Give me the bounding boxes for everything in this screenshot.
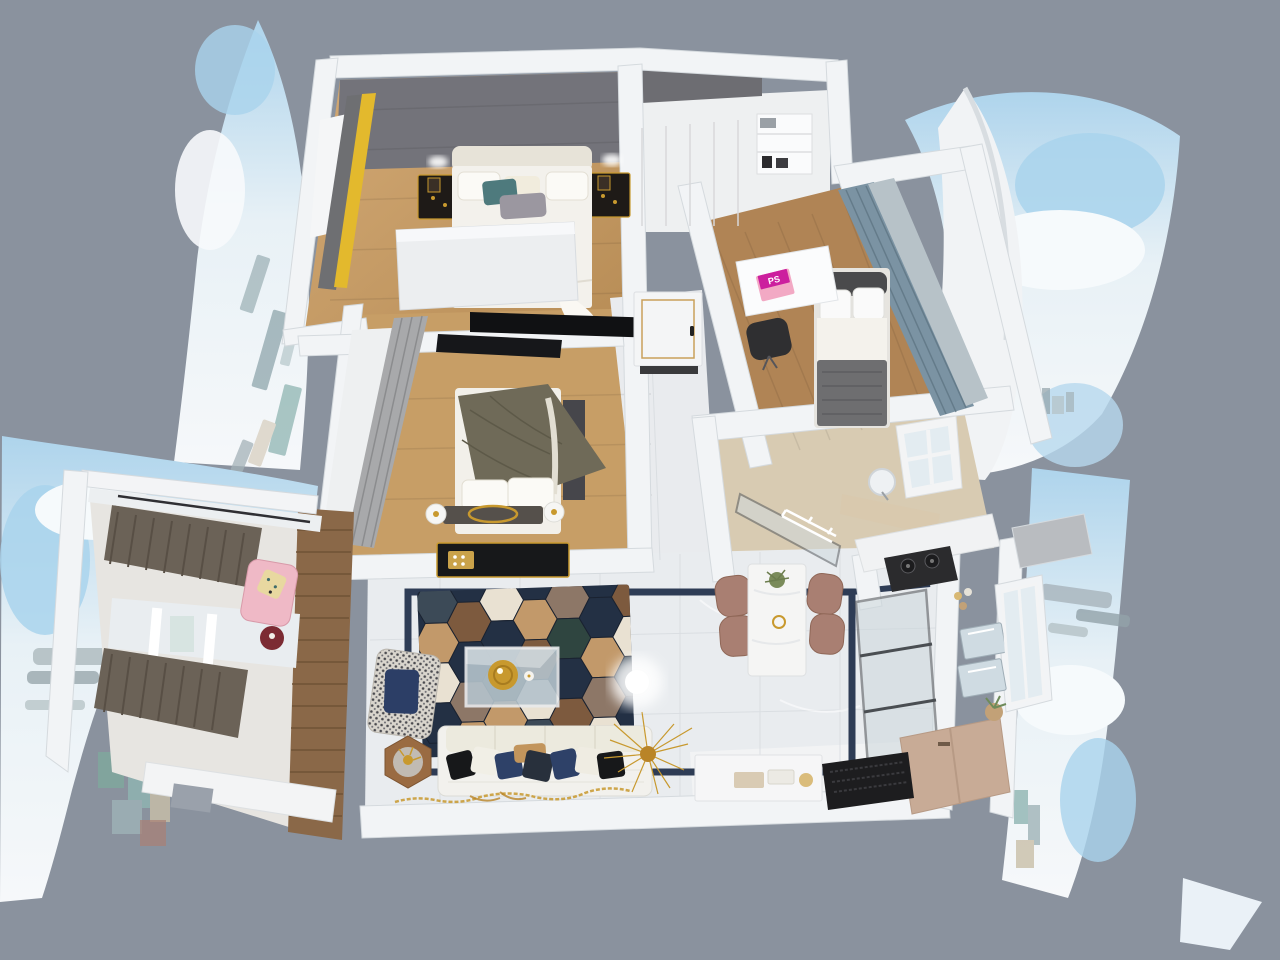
entrance <box>695 752 914 810</box>
door-handle <box>690 326 694 336</box>
navy-cushion <box>384 669 420 714</box>
pillow-white <box>546 172 588 200</box>
hallway-door <box>634 292 702 374</box>
door-mat <box>640 366 698 374</box>
round-mirror <box>869 469 895 495</box>
pink-chaise <box>239 558 299 628</box>
wall-appliance <box>958 658 1007 697</box>
gray-blanket <box>817 360 887 426</box>
pillow-white <box>853 288 884 320</box>
photo-frame <box>598 176 610 190</box>
pillow-gray <box>499 192 547 219</box>
tray <box>768 770 794 784</box>
cabinet-handle <box>938 742 950 746</box>
bed-sheet <box>817 318 887 366</box>
pillow-dark-floral <box>521 749 554 782</box>
sky-patch <box>195 25 275 115</box>
dining-chair <box>805 572 844 616</box>
tilted-wardrobe-panel <box>396 222 578 310</box>
pillow-white <box>508 478 554 508</box>
cloud <box>175 130 245 250</box>
render-stage: PS <box>0 0 1280 960</box>
sconce-glow <box>602 154 622 166</box>
shelf-items <box>760 118 776 128</box>
books <box>776 158 788 168</box>
houndstooth-armchair <box>367 648 442 740</box>
tray <box>734 772 764 788</box>
console-knob-panel <box>448 551 474 569</box>
sky-patch <box>1060 738 1136 862</box>
gold-bowl <box>799 773 813 787</box>
gold-plant <box>403 755 413 765</box>
floorplan-render: PS <box>0 0 1280 960</box>
sconce-glow <box>428 156 448 168</box>
pillow-black <box>596 750 625 779</box>
books <box>762 156 772 168</box>
city-glimpse <box>170 616 194 652</box>
gold-round-tray <box>488 660 518 690</box>
photo-frame <box>428 178 440 192</box>
dining-chair <box>809 613 846 655</box>
table-flower <box>269 633 275 639</box>
